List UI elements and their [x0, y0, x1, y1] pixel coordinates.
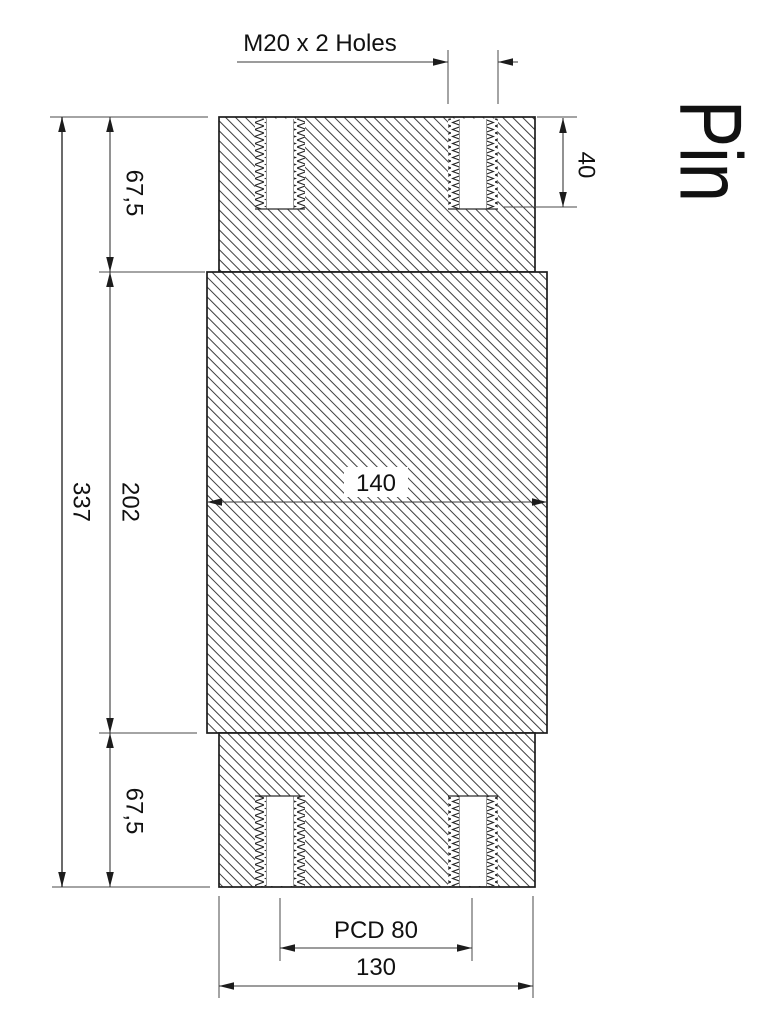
- thread-zigzag-left: [255, 796, 266, 886]
- threaded-hole-top-right: [448, 119, 498, 210]
- dim-pcd-text: PCD 80: [334, 917, 418, 944]
- thread-zigzag-left: [448, 119, 459, 210]
- arrowhead: [457, 944, 472, 952]
- arrowhead: [433, 58, 448, 66]
- thread-zigzag-left: [255, 119, 266, 210]
- threaded-hole-bottom-right: [448, 796, 498, 886]
- thread-callout-text: M20 x 2 Holes: [243, 30, 396, 57]
- arrowhead: [518, 982, 533, 990]
- arrowhead: [58, 117, 66, 132]
- arrowhead: [106, 272, 114, 287]
- dim-hole-depth-text: 40: [573, 152, 600, 179]
- arrowhead: [58, 872, 66, 887]
- dim-middle-section-text: 202: [117, 482, 144, 522]
- dim-top-section-text: 67,5: [121, 170, 148, 217]
- arrowhead: [106, 718, 114, 733]
- thread-zigzag-left: [448, 796, 459, 886]
- dim-total-length-text: 337: [68, 482, 95, 522]
- dim-end-diameter-text: 130: [356, 954, 396, 981]
- thread-zigzag-right: [294, 796, 305, 886]
- dim-bottom-section-text: 67,5: [121, 788, 148, 835]
- arrowhead: [106, 117, 114, 132]
- threaded-hole-top-left: [255, 119, 305, 210]
- arrowhead: [498, 58, 513, 66]
- engineering-drawing-canvas: M20 x 2 Holes 40 67,5 202 337 67,5 140 P…: [0, 0, 768, 1024]
- threaded-hole-bottom-left: [255, 796, 305, 886]
- drawing-title: Pin: [662, 100, 761, 202]
- arrowhead: [559, 192, 567, 207]
- arrowhead: [106, 733, 114, 748]
- arrowhead: [219, 982, 234, 990]
- arrowhead: [106, 872, 114, 887]
- arrowhead: [280, 944, 295, 952]
- arrowhead: [106, 257, 114, 272]
- dim-middle-diameter-text: 140: [356, 470, 396, 497]
- drawing-page: M20 x 2 Holes 40 67,5 202 337 67,5 140 P…: [0, 0, 768, 1024]
- thread-zigzag-right: [487, 119, 498, 210]
- thread-zigzag-right: [294, 119, 305, 210]
- thread-zigzag-right: [487, 796, 498, 886]
- arrowhead: [559, 118, 567, 133]
